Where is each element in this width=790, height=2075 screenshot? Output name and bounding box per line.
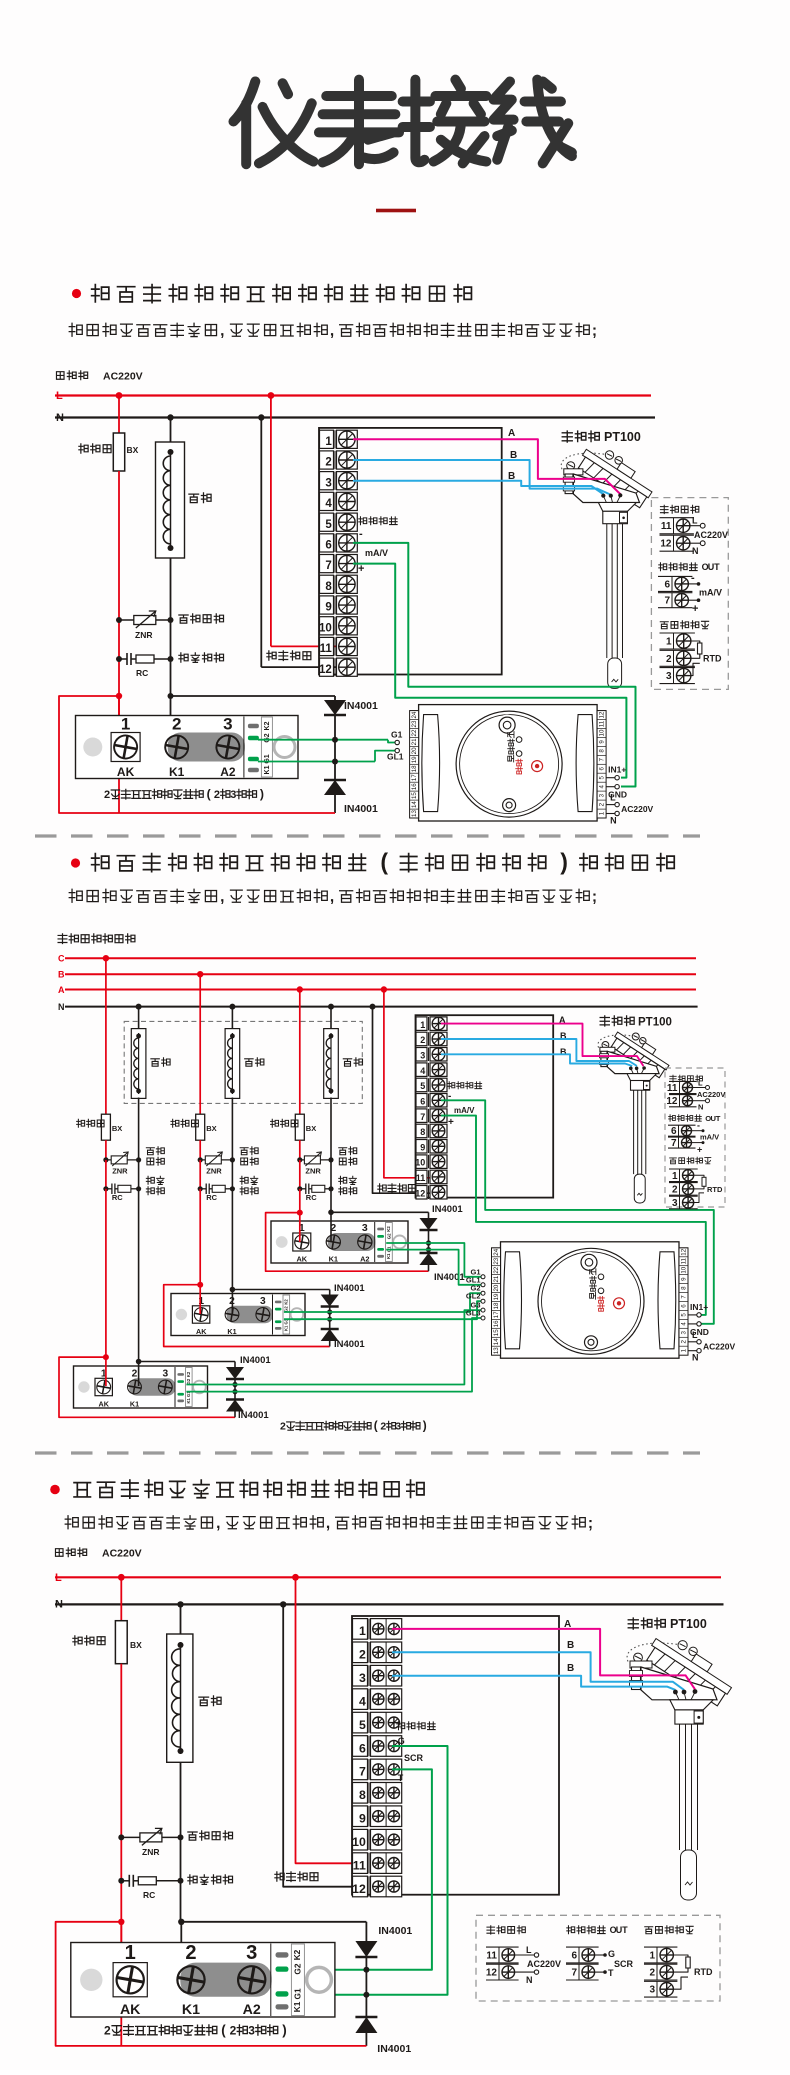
svg-text:AC220V: AC220V [703, 1341, 735, 1351]
svg-text:L: L [526, 1945, 532, 1955]
svg-text:5: 5 [599, 775, 606, 779]
svg-text:RTD: RTD [707, 1185, 723, 1194]
svg-text:T: T [716, 1114, 721, 1123]
svg-text:14: 14 [411, 801, 418, 808]
svg-text:RC: RC [306, 1193, 317, 1202]
svg-text:GL3: GL3 [466, 1309, 481, 1318]
svg-text:2: 2 [420, 1035, 425, 1045]
svg-text:13: 13 [493, 1347, 500, 1354]
svg-text:SCR: SCR [614, 1959, 634, 1969]
svg-text:+: + [697, 1145, 702, 1155]
svg-text:N: N [526, 1975, 533, 1985]
svg-text:B: B [58, 970, 65, 980]
svg-text:12: 12 [486, 1968, 498, 1979]
svg-text:(: ( [221, 2022, 226, 2037]
svg-text:11: 11 [320, 643, 333, 655]
svg-text:5: 5 [325, 519, 332, 531]
svg-text:,: , [326, 1515, 330, 1532]
svg-text:16: 16 [411, 783, 418, 790]
svg-text:10: 10 [352, 1835, 366, 1849]
svg-text:6: 6 [571, 1951, 577, 1962]
svg-text:L: L [692, 516, 698, 526]
svg-text:9: 9 [420, 1142, 425, 1152]
svg-text:G2: G2 [264, 733, 271, 742]
svg-text:AC220V: AC220V [102, 1548, 142, 1560]
svg-text:12: 12 [352, 1882, 366, 1896]
svg-text:T: T [714, 562, 720, 572]
svg-text:IN4001: IN4001 [377, 2043, 411, 2055]
svg-text:N: N [692, 1353, 699, 1363]
svg-text:3: 3 [395, 1421, 401, 1433]
svg-text:3: 3 [162, 1369, 168, 1380]
svg-text:;: ; [592, 322, 597, 339]
svg-text:1: 1 [325, 436, 332, 448]
svg-text:): ) [260, 787, 264, 801]
svg-text:8: 8 [599, 749, 606, 753]
svg-text:2: 2 [325, 457, 331, 469]
svg-text:IN1+: IN1+ [690, 1302, 708, 1312]
svg-text:ZNR: ZNR [135, 630, 152, 640]
svg-text:2: 2 [104, 789, 110, 801]
svg-text:3: 3 [666, 671, 672, 682]
svg-text:K2: K2 [283, 1299, 288, 1305]
svg-text:8: 8 [325, 581, 332, 593]
svg-text:ZNR: ZNR [142, 1847, 159, 1857]
svg-text:): ) [560, 849, 568, 875]
svg-text:11: 11 [416, 1173, 426, 1183]
svg-text:18: 18 [411, 765, 418, 772]
svg-text:,: , [220, 888, 224, 905]
svg-text:18: 18 [493, 1302, 500, 1309]
svg-text:SCR: SCR [404, 1753, 424, 1763]
svg-text:5: 5 [359, 1718, 366, 1732]
svg-text:9: 9 [599, 740, 606, 744]
svg-text:5: 5 [681, 1313, 688, 1317]
svg-text:AC220V: AC220V [621, 804, 653, 814]
svg-text:AK: AK [117, 765, 135, 779]
svg-text:3: 3 [681, 1331, 688, 1335]
svg-text:,: , [330, 888, 334, 905]
svg-text:BX: BX [206, 1124, 216, 1133]
svg-text:mA/V: mA/V [365, 548, 388, 558]
svg-text:+: + [692, 603, 698, 615]
svg-text:10: 10 [681, 1266, 688, 1273]
svg-text:ZNR: ZNR [305, 1167, 321, 1176]
svg-text:T: T [608, 1968, 614, 1978]
svg-text:PT100: PT100 [604, 430, 641, 444]
svg-text:RC: RC [206, 1193, 217, 1202]
svg-text:G2: G2 [186, 1378, 191, 1384]
svg-text:K1: K1 [182, 2002, 200, 2018]
svg-text:7: 7 [359, 1765, 366, 1779]
svg-text:,: , [220, 322, 224, 339]
svg-text:17: 17 [493, 1311, 500, 1318]
svg-text:K1: K1 [130, 1400, 139, 1409]
svg-text:G2: G2 [292, 1963, 302, 1974]
svg-text:24: 24 [493, 1248, 500, 1255]
svg-text:11: 11 [486, 1951, 497, 1962]
svg-text:1: 1 [420, 1020, 425, 1030]
svg-text:2: 2 [359, 1648, 366, 1662]
svg-text:2: 2 [104, 2023, 111, 2037]
svg-text:IN4001: IN4001 [240, 1355, 271, 1366]
svg-text:G: G [608, 1949, 615, 1959]
svg-text:K1: K1 [386, 1253, 391, 1259]
svg-text:C: C [58, 954, 65, 964]
svg-text:2: 2 [214, 789, 220, 801]
svg-text:K2: K2 [292, 1949, 302, 1960]
svg-text:N: N [58, 1002, 65, 1012]
svg-text:-: - [691, 572, 695, 584]
svg-text:BX: BX [127, 445, 139, 455]
svg-text:+: + [358, 563, 364, 575]
svg-text:12: 12 [599, 711, 606, 718]
svg-text:6: 6 [359, 1741, 366, 1755]
svg-text:4: 4 [359, 1695, 366, 1709]
svg-text:2: 2 [681, 1340, 688, 1344]
svg-text:3: 3 [672, 1198, 678, 1209]
svg-text:RTD: RTD [703, 653, 722, 663]
svg-text:L: L [692, 1330, 698, 1340]
svg-text:(: ( [380, 849, 388, 875]
svg-text:GL2: GL2 [466, 1292, 481, 1301]
svg-text:N: N [610, 816, 617, 826]
svg-text:mA/V: mA/V [454, 1106, 475, 1115]
svg-text:G: G [398, 1736, 405, 1746]
svg-text:12: 12 [660, 539, 672, 550]
svg-text:BX: BX [112, 1124, 122, 1133]
svg-text:PT100: PT100 [638, 1017, 672, 1029]
svg-text:BX: BX [306, 1124, 316, 1133]
svg-text:2: 2 [672, 1184, 678, 1195]
svg-text:T: T [622, 1925, 628, 1935]
svg-text:8: 8 [420, 1127, 425, 1137]
svg-text:-: - [359, 528, 363, 540]
svg-text:11: 11 [353, 1858, 366, 1872]
svg-text:(: ( [374, 1419, 378, 1433]
svg-text:11: 11 [681, 1257, 688, 1264]
svg-text:AK: AK [120, 2002, 141, 2018]
svg-text:AK: AK [296, 1255, 307, 1264]
svg-text:10: 10 [415, 1158, 425, 1168]
svg-text:1: 1 [672, 1171, 678, 1182]
svg-text:11: 11 [661, 521, 672, 532]
svg-text:3: 3 [359, 1671, 366, 1685]
svg-text:mA/V: mA/V [700, 1133, 719, 1142]
svg-text:1: 1 [125, 1942, 136, 1964]
svg-text:11: 11 [667, 1083, 678, 1094]
svg-text:12: 12 [666, 1096, 678, 1107]
svg-text:5: 5 [420, 1081, 425, 1091]
svg-text:3: 3 [325, 477, 331, 489]
svg-text:K1: K1 [264, 765, 271, 774]
svg-text:K1: K1 [329, 1255, 338, 1264]
svg-text:1: 1 [649, 1951, 655, 1962]
svg-text:4: 4 [681, 1322, 688, 1326]
svg-text:K1: K1 [283, 1325, 288, 1331]
svg-text:IN1+: IN1+ [608, 765, 626, 775]
svg-text:7: 7 [681, 1295, 688, 1299]
svg-text:7: 7 [420, 1112, 425, 1122]
svg-text:A: A [508, 428, 515, 439]
svg-text:6: 6 [420, 1096, 425, 1106]
svg-text:BX: BX [130, 1640, 142, 1650]
svg-text:K1: K1 [227, 1327, 236, 1336]
svg-text:G1: G1 [391, 730, 403, 740]
svg-text:24: 24 [411, 711, 418, 718]
svg-text:1: 1 [198, 1296, 204, 1307]
svg-text:;: ; [592, 888, 597, 905]
svg-text:4: 4 [420, 1066, 425, 1076]
svg-text:12: 12 [415, 1188, 425, 1198]
svg-text:4: 4 [599, 784, 606, 788]
svg-text:3: 3 [223, 715, 232, 734]
svg-text:3: 3 [246, 1942, 257, 1964]
svg-text:2: 2 [185, 1942, 196, 1964]
svg-text:2: 2 [230, 2023, 237, 2037]
svg-text:K1: K1 [292, 2001, 302, 2012]
svg-text:17: 17 [411, 774, 418, 781]
svg-text:A2: A2 [220, 765, 236, 779]
svg-text:22: 22 [493, 1266, 500, 1273]
svg-text:): ) [423, 1419, 427, 1433]
svg-text:16: 16 [493, 1320, 500, 1327]
svg-text:7: 7 [571, 1968, 577, 1979]
svg-text:3: 3 [599, 793, 606, 797]
svg-text:3: 3 [248, 2023, 255, 2037]
svg-text:12: 12 [319, 664, 332, 676]
svg-text:7: 7 [325, 560, 331, 572]
svg-text:IN4001: IN4001 [238, 1410, 269, 1421]
svg-text:L: L [610, 793, 616, 803]
svg-text:6: 6 [664, 579, 670, 590]
svg-text:1: 1 [681, 1348, 688, 1352]
svg-text:2: 2 [599, 802, 606, 806]
svg-text:1: 1 [359, 1624, 366, 1638]
svg-text:ZNR: ZNR [206, 1167, 222, 1176]
svg-text:-: - [697, 1121, 700, 1131]
svg-text:7: 7 [671, 1138, 677, 1149]
svg-text:G2: G2 [386, 1233, 391, 1239]
svg-text:6: 6 [671, 1126, 677, 1137]
svg-text:;: ; [588, 1515, 593, 1532]
svg-text:B: B [560, 1047, 567, 1057]
svg-text:10: 10 [599, 729, 606, 736]
svg-text:): ) [282, 2022, 286, 2037]
svg-text:19: 19 [493, 1293, 500, 1300]
svg-text:AC220V: AC220V [527, 1959, 561, 1969]
svg-text:21: 21 [411, 738, 418, 745]
svg-text:22: 22 [411, 729, 418, 736]
svg-text:AC220V: AC220V [103, 371, 143, 383]
svg-text:23: 23 [493, 1257, 500, 1264]
svg-text:IN4001: IN4001 [334, 1283, 365, 1294]
svg-text:6: 6 [681, 1304, 688, 1308]
svg-text:4: 4 [325, 498, 332, 510]
svg-text:IN4001: IN4001 [378, 1925, 412, 1937]
svg-text:,: , [330, 322, 334, 339]
svg-text:6: 6 [325, 540, 331, 552]
svg-text:13: 13 [411, 810, 418, 817]
svg-text:6: 6 [599, 767, 606, 771]
svg-text:19: 19 [411, 756, 418, 763]
svg-text:14: 14 [493, 1338, 500, 1345]
svg-text:2: 2 [380, 1421, 386, 1433]
svg-text:20: 20 [493, 1284, 500, 1291]
svg-text:8: 8 [359, 1788, 366, 1802]
svg-text:2: 2 [132, 1369, 138, 1380]
svg-text:A2: A2 [360, 1255, 369, 1264]
svg-text:K1: K1 [186, 1397, 191, 1403]
svg-text:B: B [567, 1640, 574, 1651]
svg-text:K2: K2 [264, 721, 271, 730]
svg-text:AC220V: AC220V [697, 1090, 725, 1099]
svg-text:B: B [567, 1663, 574, 1674]
svg-text:AC220V: AC220V [694, 530, 728, 540]
svg-text:IN4001: IN4001 [344, 803, 378, 815]
svg-text:IN4001: IN4001 [434, 1272, 465, 1283]
svg-text:N: N [698, 1103, 703, 1112]
svg-text:20: 20 [411, 747, 418, 754]
svg-text:K2: K2 [386, 1226, 391, 1232]
svg-text:8: 8 [681, 1286, 688, 1290]
svg-text:23: 23 [411, 720, 418, 727]
svg-text:15: 15 [493, 1329, 500, 1336]
svg-text:T: T [398, 1773, 404, 1783]
svg-text:IN4001: IN4001 [432, 1204, 463, 1215]
svg-text:12: 12 [681, 1248, 688, 1255]
svg-text:IN4001: IN4001 [344, 700, 378, 712]
svg-text:9: 9 [325, 602, 331, 614]
svg-text:3: 3 [230, 789, 236, 801]
svg-text:3: 3 [420, 1050, 425, 1060]
svg-text:G1: G1 [292, 1988, 302, 1999]
svg-text:2: 2 [649, 1968, 655, 1979]
svg-text:PT100: PT100 [670, 1617, 707, 1631]
svg-text:K1: K1 [169, 765, 185, 779]
svg-text:9: 9 [681, 1277, 688, 1281]
svg-text:3: 3 [260, 1296, 266, 1307]
svg-text:3: 3 [362, 1222, 368, 1234]
svg-text:K2: K2 [186, 1371, 191, 1377]
svg-text:RC: RC [136, 668, 148, 678]
svg-text:GL1: GL1 [387, 752, 404, 762]
svg-text:2: 2 [280, 1421, 286, 1433]
svg-text:15: 15 [411, 792, 418, 799]
svg-text:+: + [448, 1117, 454, 1128]
svg-text:IN4001: IN4001 [334, 1339, 365, 1350]
svg-text:,: , [216, 1515, 220, 1532]
svg-text:RC: RC [143, 1890, 155, 1900]
svg-text:G2: G2 [284, 1306, 289, 1312]
svg-text:2: 2 [172, 715, 181, 734]
svg-text:mA/V: mA/V [699, 588, 722, 598]
svg-text:A2: A2 [243, 2002, 261, 2018]
svg-text:10: 10 [319, 622, 332, 634]
svg-text:1: 1 [666, 637, 672, 648]
svg-text:L: L [698, 1079, 703, 1088]
svg-text:RTD: RTD [694, 1967, 713, 1977]
svg-text:N: N [692, 546, 699, 556]
svg-text:3: 3 [649, 1985, 655, 1996]
svg-text:9: 9 [359, 1812, 366, 1826]
svg-text:21: 21 [493, 1275, 500, 1282]
svg-text:1: 1 [121, 715, 130, 734]
svg-text:2: 2 [666, 654, 672, 665]
svg-text:RC: RC [112, 1193, 123, 1202]
svg-text:1: 1 [599, 811, 606, 815]
svg-text:11: 11 [599, 720, 606, 727]
svg-text:7: 7 [664, 596, 670, 607]
svg-text:7: 7 [599, 758, 606, 762]
svg-text:A: A [58, 985, 65, 995]
svg-text:ZNR: ZNR [112, 1167, 128, 1176]
svg-text:AK: AK [99, 1400, 110, 1409]
svg-text:AK: AK [196, 1327, 207, 1336]
